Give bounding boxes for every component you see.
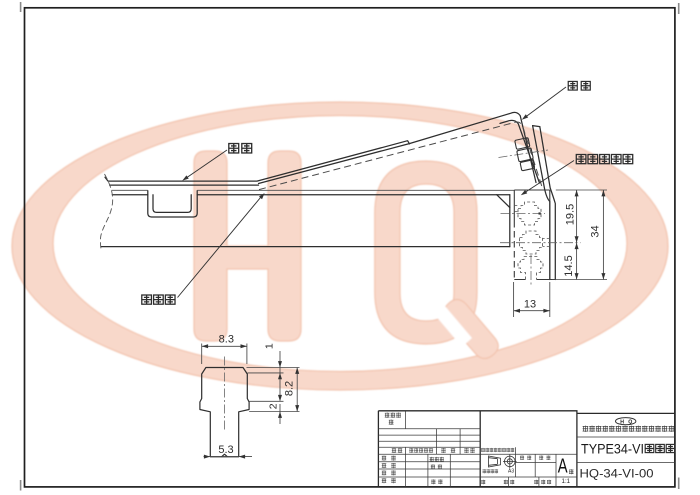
svg-text:2: 2 xyxy=(268,403,280,409)
svg-text:A3: A3 xyxy=(508,469,514,475)
svg-text:5.3: 5.3 xyxy=(218,444,233,456)
svg-text:19.5: 19.5 xyxy=(565,204,577,225)
svg-text:HQ-34-VI-00: HQ-34-VI-00 xyxy=(580,467,654,481)
svg-text:13: 13 xyxy=(524,299,536,311)
svg-text:TYPE34-VI: TYPE34-VI xyxy=(581,442,644,457)
svg-text:1: 1 xyxy=(263,343,275,349)
svg-text:1:1: 1:1 xyxy=(562,478,571,485)
svg-text:H Q: H Q xyxy=(620,420,633,426)
svg-text:14.5: 14.5 xyxy=(563,255,575,276)
svg-text:8.3: 8.3 xyxy=(219,334,234,346)
svg-text:8.2: 8.2 xyxy=(284,381,296,396)
svg-text:A: A xyxy=(558,454,568,477)
svg-text:34: 34 xyxy=(590,225,602,237)
